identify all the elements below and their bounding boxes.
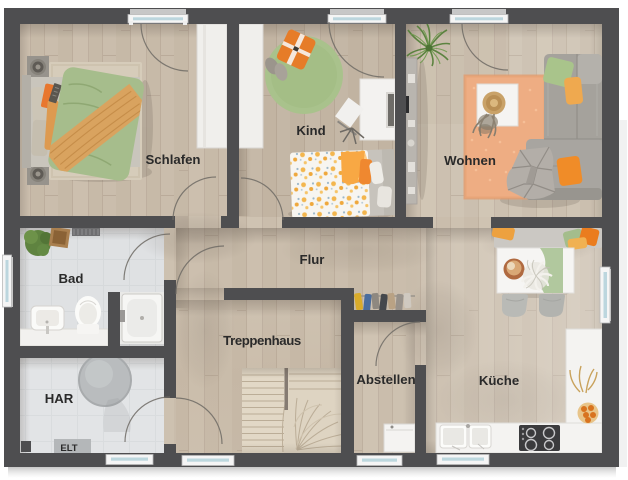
svg-text:Küche: Küche [479,373,519,388]
svg-text:Schlafen: Schlafen [146,152,201,167]
svg-text:Bad: Bad [59,271,84,286]
svg-text:ELT: ELT [60,443,77,454]
svg-text:HAR: HAR [45,391,74,406]
svg-text:Wohnen: Wohnen [444,153,496,168]
svg-text:Treppenhaus: Treppenhaus [223,333,301,348]
svg-text:Kind: Kind [296,123,325,138]
svg-text:Abstellen: Abstellen [356,372,415,387]
svg-text:Flur: Flur [300,252,325,267]
